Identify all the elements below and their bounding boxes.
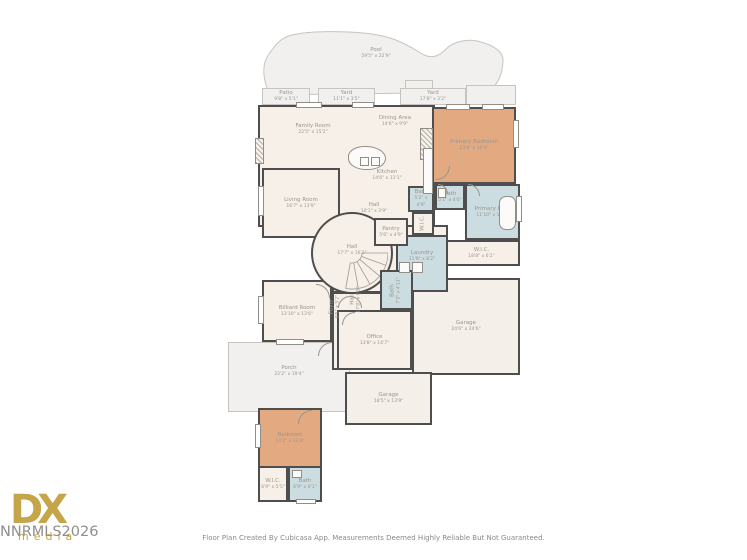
room-label: Office 13'8" x 14'7" — [360, 333, 389, 348]
watermark: DX media NNRMLS2026 — [0, 470, 170, 560]
room-dims: 22'2" x 19'4" — [274, 372, 303, 379]
room-yard-2: Yard 17'8" x 3'2" — [400, 88, 466, 105]
room-label: Bedroom 14'2" x 13'8" — [275, 431, 304, 446]
room-label: Patio 9'8" x 5'1" — [274, 89, 298, 104]
room-label: W.I.C. 6'9" x 5'5" — [261, 477, 285, 492]
window — [446, 104, 470, 110]
room-name: Living Room — [284, 196, 318, 204]
room-name: Patio — [274, 89, 298, 97]
dryer — [412, 262, 423, 273]
window — [352, 102, 374, 108]
room-name: W.I.C. — [419, 216, 427, 232]
room-name: Yard — [333, 89, 359, 97]
room-dims: 13'10" x 13'6" — [279, 312, 315, 319]
room-pantry: Pantry 5'6" x 4'9" — [374, 218, 408, 246]
window — [482, 104, 504, 110]
room-name: Pantry — [379, 225, 403, 233]
room-name: Bedroom — [275, 431, 304, 439]
room-dims: 16'7" x 13'9" — [284, 204, 318, 211]
room-bath-lower-mid: Bath 7'5" x 4'11" — [380, 270, 413, 310]
room-name: Porch — [274, 364, 303, 372]
room-label: Porch 22'2" x 19'4" — [274, 364, 303, 379]
room-name: Garage — [451, 319, 480, 327]
room-bedroom-2: Bedroom 14'2" x 13'8" — [258, 408, 322, 468]
bath-sink — [292, 470, 302, 478]
window — [296, 499, 316, 504]
kitchen-counter — [423, 148, 433, 194]
room-name: W.I.C. — [261, 477, 285, 485]
room-wic-mid: W.I.C. — [412, 212, 434, 235]
room-dims: 18'5" x 13'9" — [374, 399, 403, 406]
room-name: Laundry — [409, 249, 435, 257]
room-dims: 5'2" x 4'9" — [410, 196, 432, 210]
room-name: Yard — [420, 89, 446, 97]
room-dims: 6'9" x 6'1" — [293, 485, 317, 492]
room-dims: 5'6" x 4'9" — [379, 233, 403, 240]
room-label: W.I.C. 18'8" x 6'2" — [468, 246, 494, 261]
room-name: W.I.C. — [468, 246, 494, 254]
room-garage: Garage 24'6" x 24'6" — [412, 278, 520, 375]
fireplace-hatch — [255, 138, 264, 164]
kitchen-stove — [371, 157, 380, 166]
window — [276, 339, 304, 345]
room-label: Pantry 5'6" x 4'9" — [379, 225, 403, 240]
room-label: Billiard Room 13'10" x 13'6" — [279, 304, 315, 319]
room-dims: 13'8" x 14'7" — [360, 341, 389, 348]
room-name: Primary Bedroom — [450, 138, 498, 146]
room-label: Living Room 16'7" x 13'9" — [284, 196, 318, 211]
footer-caption: Floor Plan Created By Cubicasa App. Meas… — [0, 534, 747, 542]
washer — [399, 262, 410, 273]
room-label: Garage 24'6" x 24'6" — [451, 319, 480, 334]
room-label: Primary Bedroom 13'8" x 16'4" — [450, 138, 498, 153]
room-dims: 5'1" x 4'6" — [438, 198, 462, 205]
room-label: Bath 7'5" x 4'11" — [389, 277, 404, 303]
room-dims: 6'9" x 5'5" — [261, 485, 285, 492]
window — [255, 424, 261, 448]
room-dims: 18'8" x 6'2" — [468, 254, 494, 261]
window — [516, 196, 522, 222]
yard-step — [466, 85, 516, 105]
room-name: Garage — [374, 391, 403, 399]
room-dims: 24'6" x 24'6" — [451, 327, 480, 334]
room-dims: 9'8" x 5'1" — [274, 97, 298, 104]
floor-plan-page: Pool 59'5" x 22'9" Patio 9'8" x 5'1" Yar… — [0, 0, 747, 560]
room-name: Billiard Room — [279, 304, 315, 312]
room-label: Yard 17'8" x 3'2" — [420, 89, 446, 104]
window — [258, 186, 264, 216]
room-name: Bath — [389, 277, 397, 303]
kitchen-sink — [360, 157, 369, 166]
room-dims: 7'5" x 4'11" — [397, 277, 404, 303]
room-wic-primary: W.I.C. 18'8" x 6'2" — [443, 240, 520, 266]
room-garage-2: Garage 18'5" x 13'9" — [345, 372, 432, 425]
room-dims: 17'8" x 3'2" — [420, 97, 446, 104]
room-dims: 13'8" x 16'4" — [450, 146, 498, 153]
room-label: Garage 18'5" x 13'9" — [374, 391, 403, 406]
bathtub — [499, 196, 516, 230]
room-dims: 14'2" x 13'8" — [275, 439, 304, 446]
room-name: Office — [360, 333, 389, 341]
room-label: Bath 6'9" x 6'1" — [293, 477, 317, 492]
window — [296, 102, 322, 108]
room-label: W.I.C. — [419, 216, 427, 232]
window — [258, 296, 264, 324]
window — [513, 120, 519, 148]
room-wic-lower: W.I.C. 6'9" x 5'5" — [258, 466, 288, 502]
